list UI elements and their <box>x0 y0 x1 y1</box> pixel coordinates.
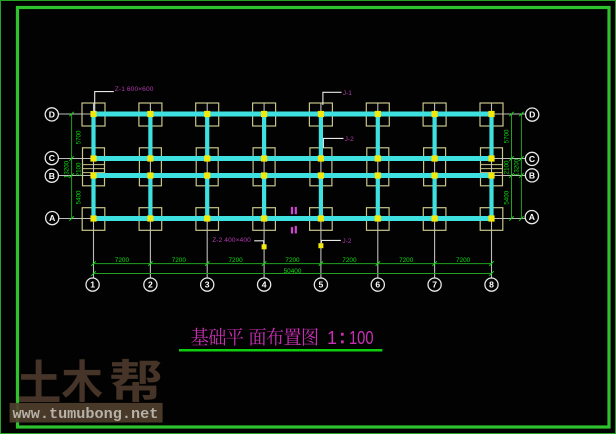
svg-text:1: 1 <box>90 280 95 290</box>
svg-text:J-2: J-2 <box>345 136 354 143</box>
svg-text:2100: 2100 <box>504 160 511 174</box>
svg-text:7200: 7200 <box>342 257 357 264</box>
svg-text:2: 2 <box>148 280 153 290</box>
svg-text:7200: 7200 <box>456 257 471 264</box>
svg-text:D: D <box>529 110 535 120</box>
svg-text:7200: 7200 <box>285 257 300 264</box>
svg-text:7200: 7200 <box>228 257 243 264</box>
svg-text:J-1: J-1 <box>343 90 352 97</box>
svg-text:A: A <box>49 213 55 223</box>
svg-text:Z-1 600×600: Z-1 600×600 <box>115 86 154 93</box>
svg-text:100: 100 <box>349 328 374 348</box>
svg-text:C: C <box>529 154 535 164</box>
svg-text:3: 3 <box>205 280 210 290</box>
svg-text:5400: 5400 <box>504 190 511 204</box>
svg-text:5: 5 <box>319 280 324 290</box>
svg-text:7200: 7200 <box>115 257 130 264</box>
svg-text:Z-2 400×400: Z-2 400×400 <box>212 237 251 244</box>
svg-text:B: B <box>49 171 55 181</box>
svg-text:1: 1 <box>327 328 337 348</box>
svg-text:J-2: J-2 <box>342 238 351 245</box>
svg-text:7: 7 <box>432 280 437 290</box>
svg-text:8: 8 <box>489 280 494 290</box>
svg-text:4: 4 <box>262 280 267 290</box>
svg-text:2100: 2100 <box>76 162 83 176</box>
svg-text:5700: 5700 <box>504 129 511 143</box>
svg-text:www.tumubong.net: www.tumubong.net <box>13 405 159 423</box>
svg-text:B: B <box>529 171 535 181</box>
svg-text:C: C <box>49 153 55 163</box>
svg-text:13200: 13200 <box>514 158 521 176</box>
svg-text:13200: 13200 <box>63 160 70 178</box>
svg-text:5400: 5400 <box>76 190 83 204</box>
svg-text:5700: 5700 <box>76 130 83 144</box>
svg-text:50400: 50400 <box>284 268 302 275</box>
svg-text:6: 6 <box>375 280 380 290</box>
svg-text:A: A <box>529 212 535 222</box>
svg-text:7200: 7200 <box>399 257 414 264</box>
svg-text:D: D <box>49 110 55 120</box>
svg-text:7200: 7200 <box>172 257 187 264</box>
